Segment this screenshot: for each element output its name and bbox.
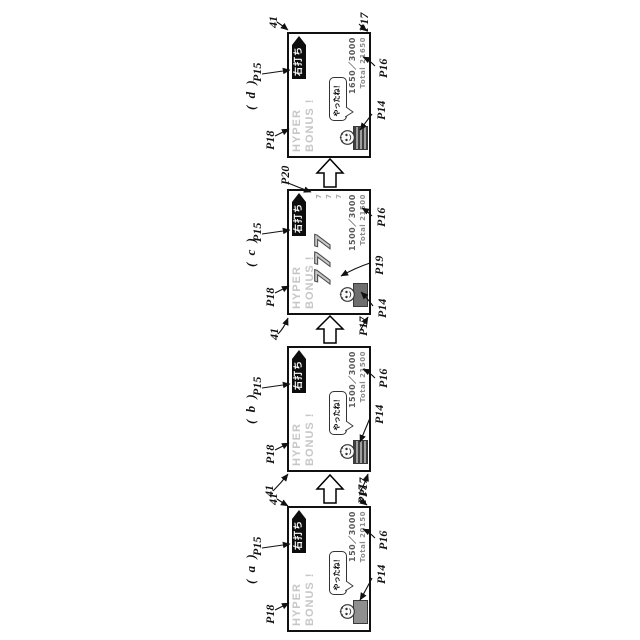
character-face-icon xyxy=(339,444,355,461)
right-arrowhead-icon xyxy=(292,193,306,202)
round-count: 1650／3000 xyxy=(347,37,358,94)
ref-label-p18-a: P18 xyxy=(263,605,278,624)
ref-label-p17-c: P17 xyxy=(356,317,371,336)
right-strike-label: 右打ち xyxy=(292,45,306,79)
leader-p15-c xyxy=(262,230,290,234)
counter-display: 150／3000 Total 20150 xyxy=(347,511,367,562)
bonus-line: BONUS ! xyxy=(304,99,317,152)
right-arrowhead-icon xyxy=(292,350,306,359)
ref-label-41-c: 41 xyxy=(267,328,282,340)
speech-bubble-text: やったね！ xyxy=(333,396,341,431)
total-count: Total 21650 xyxy=(359,37,367,94)
flow-arrow-a-to-b xyxy=(317,475,343,503)
right-strike-indicator: 右打ち xyxy=(292,36,306,79)
round-count: 150／3000 xyxy=(347,511,358,562)
speech-bubble: やったね！ xyxy=(329,77,347,121)
right-strike-label: 右打ち xyxy=(292,202,306,236)
speech-bubble: やったね！ xyxy=(329,551,347,595)
panel-tag-b: ( b ) xyxy=(243,392,259,424)
hyper-bonus-text: HYPER BONUS ! xyxy=(291,99,317,152)
character-face-icon xyxy=(339,130,355,147)
ref-label-p19-c: P19 xyxy=(372,256,387,275)
screen-panel-b: HYPER BONUS ! 右打ち やったね！ 1500／3000 Total … xyxy=(287,346,371,472)
ref-label-p16-d: P16 xyxy=(376,59,391,78)
mini-symbols: 7 7 7 xyxy=(314,194,344,199)
character-group xyxy=(339,125,368,151)
figure-stage: HYPER BONUS ! 右打ち やったね！ 150／3000 Total 2… xyxy=(0,0,640,640)
right-arrowhead-icon xyxy=(292,510,306,519)
mini-symbol: 7 xyxy=(334,194,344,199)
p14-box xyxy=(353,283,368,307)
bubble-tail-icon xyxy=(345,420,354,432)
ref-label-p17-d: P17 xyxy=(357,13,372,32)
ref-label-p16-b: P16 xyxy=(376,369,391,388)
flow-arrow-c-to-d xyxy=(317,159,343,187)
right-strike-indicator: 右打ち xyxy=(292,510,306,553)
ref-label-p18-d: P18 xyxy=(263,131,278,150)
total-count: Total 21500 xyxy=(359,351,367,408)
speech-bubble-text: やったね！ xyxy=(333,82,341,117)
hyper-line: HYPER xyxy=(291,99,304,152)
ref-label-p15-c: P15 xyxy=(250,223,265,242)
ref-label-p20-c: P20 xyxy=(278,166,293,185)
bonus-line: BONUS ! xyxy=(304,573,317,626)
screen-panel-a: HYPER BONUS ! 右打ち やったね！ 150／3000 Total 2… xyxy=(287,506,371,632)
total-count: Total 20150 xyxy=(359,511,367,562)
ref-label-p14-d: P14 xyxy=(374,101,389,120)
leader-p15-a xyxy=(262,544,290,548)
hyper-bonus-text: HYPER BONUS ! xyxy=(291,573,317,626)
ref-label-p14-b: P14 xyxy=(372,405,387,424)
ref-label-p14-a: P14 xyxy=(374,565,389,584)
counter-display: 1500／3000 Total 21500 xyxy=(347,194,367,251)
speech-bubble-text: やったね！ xyxy=(333,556,341,591)
speech-bubble: やったね！ xyxy=(329,391,347,435)
hyper-line: HYPER xyxy=(291,413,304,466)
panel-tag-d: ( d ) xyxy=(243,78,259,110)
ref-label-41-b: 41 xyxy=(262,485,277,497)
ref-label-p17-b: P17 xyxy=(356,478,371,497)
figure-viewport: HYPER BONUS ! 右打ち やったね！ 150／3000 Total 2… xyxy=(0,0,640,640)
ref-label-p18-c: P18 xyxy=(263,288,278,307)
total-count: Total 21500 xyxy=(359,194,367,251)
round-count: 1500／3000 xyxy=(347,351,358,408)
p14-box xyxy=(353,600,368,624)
hyper-line: HYPER xyxy=(291,573,304,626)
right-strike-label: 右打ち xyxy=(292,359,306,393)
round-count: 1500／3000 xyxy=(347,194,358,251)
p14-box xyxy=(353,440,368,464)
p14-box xyxy=(353,126,368,150)
jackpot-symbols: 777 xyxy=(311,231,335,286)
screen-panel-c: HYPER BONUS ! 右打ち 777 7 7 7 1500／3000 To… xyxy=(287,189,371,315)
ref-label-p18-b: P18 xyxy=(263,445,278,464)
hyper-bonus-text: HYPER BONUS ! xyxy=(291,413,317,466)
ref-label-p15-d: P15 xyxy=(250,63,265,82)
character-group xyxy=(339,282,368,308)
bonus-line: BONUS ! xyxy=(304,413,317,466)
bubble-tail-icon xyxy=(345,580,354,592)
ref-label-p16-a: P16 xyxy=(376,531,391,550)
counter-display: 1500／3000 Total 21500 xyxy=(347,351,367,408)
leader-p15-b xyxy=(262,384,290,388)
character-group xyxy=(339,439,368,465)
mini-symbol: 7 xyxy=(324,194,334,199)
ref-label-p15-a: P15 xyxy=(250,537,265,556)
right-strike-indicator: 右打ち xyxy=(292,350,306,393)
mini-symbol: 7 xyxy=(314,194,324,199)
hyper-line: HYPER xyxy=(291,256,304,309)
bubble-tail-icon xyxy=(345,106,354,118)
character-face-icon xyxy=(339,604,355,621)
character-group xyxy=(339,599,368,625)
character-face-icon xyxy=(339,287,355,304)
flow-arrow-b-to-c xyxy=(317,316,343,343)
leader-p15-d xyxy=(262,70,290,74)
right-strike-indicator: 右打ち xyxy=(292,193,306,236)
right-arrowhead-icon xyxy=(292,36,306,45)
ref-label-p14-c: P14 xyxy=(375,299,390,318)
ref-label-p15-b: P15 xyxy=(250,377,265,396)
screen-panel-d: HYPER BONUS ! 右打ち やったね！ 1650／3000 Total … xyxy=(287,32,371,158)
ref-label-41-d: 41 xyxy=(266,16,281,28)
panel-tag-a: ( a ) xyxy=(243,552,259,584)
right-strike-label: 右打ち xyxy=(292,519,306,553)
counter-display: 1650／3000 Total 21650 xyxy=(347,37,367,94)
ref-label-p16-c: P16 xyxy=(374,208,389,227)
